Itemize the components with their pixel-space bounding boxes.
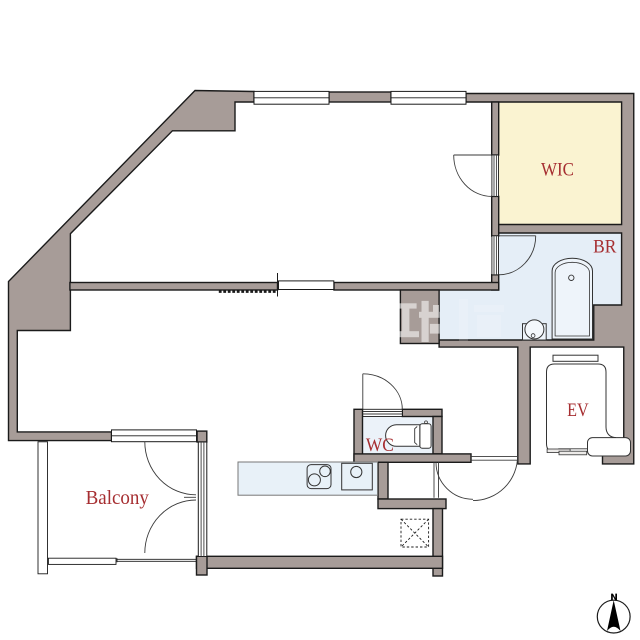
- svg-text:WIC: WIC: [541, 159, 574, 180]
- svg-text:BR: BR: [593, 236, 616, 257]
- svg-text:WC: WC: [366, 436, 394, 456]
- svg-text:Balcony: Balcony: [86, 488, 150, 509]
- svg-text:EV: EV: [567, 401, 589, 421]
